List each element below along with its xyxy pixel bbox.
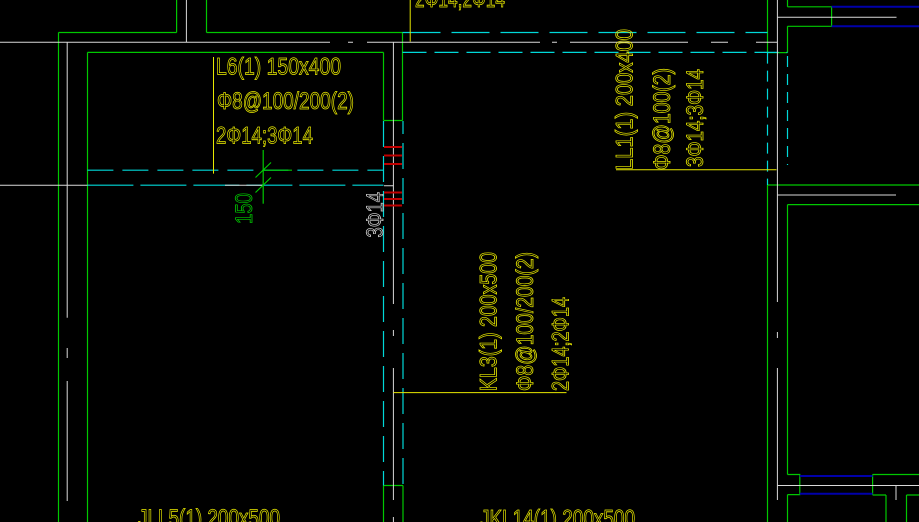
svg-text:3Φ14;3Φ14: 3Φ14;3Φ14 bbox=[682, 69, 709, 167]
svg-text:2Φ14;2Φ14: 2Φ14;2Φ14 bbox=[415, 0, 505, 13]
svg-text:JLL5(1) 200x500: JLL5(1) 200x500 bbox=[138, 505, 280, 522]
svg-text:Φ8@100/200(2): Φ8@100/200(2) bbox=[512, 252, 539, 391]
svg-text:LL1(1) 200x400: LL1(1) 200x400 bbox=[612, 29, 639, 170]
svg-text:2Φ14;2Φ14: 2Φ14;2Φ14 bbox=[548, 297, 575, 391]
svg-text:2Φ14;3Φ14: 2Φ14;3Φ14 bbox=[216, 123, 313, 150]
svg-text:Φ8@100(2): Φ8@100(2) bbox=[649, 68, 676, 170]
svg-text:3Φ14: 3Φ14 bbox=[362, 192, 389, 238]
svg-text:L6(1) 150x400: L6(1) 150x400 bbox=[216, 54, 341, 81]
svg-text:Φ8@100/200(2): Φ8@100/200(2) bbox=[217, 88, 354, 115]
svg-text:150: 150 bbox=[231, 193, 258, 224]
svg-text:JKL14(1) 200x500: JKL14(1) 200x500 bbox=[480, 506, 635, 522]
svg-text:KL3(1) 200x500: KL3(1) 200x500 bbox=[476, 252, 503, 391]
